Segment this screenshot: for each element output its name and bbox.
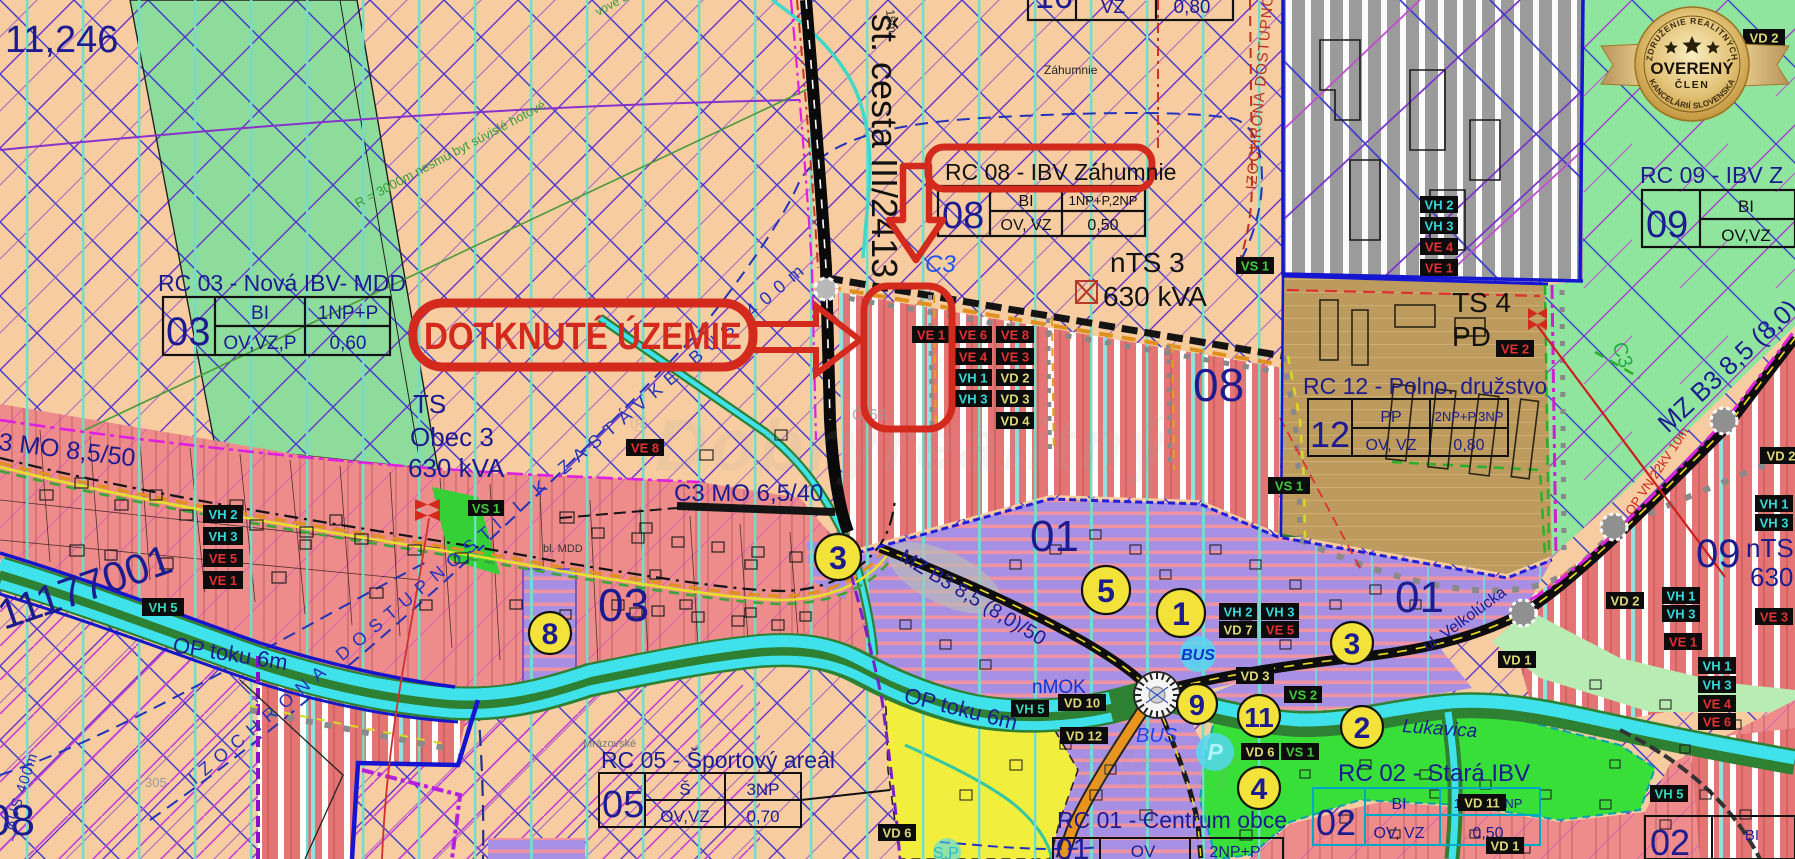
svg-text:VH 2: VH 2 xyxy=(1425,198,1454,213)
svg-text:BI: BI xyxy=(251,303,269,324)
svg-text:16: 16 xyxy=(1035,0,1073,16)
svg-text:ČLEN: ČLEN xyxy=(1675,78,1710,91)
svg-text:03: 03 xyxy=(598,579,649,631)
svg-text:VE 1: VE 1 xyxy=(917,328,945,343)
svg-text:VS 1: VS 1 xyxy=(1286,745,1314,760)
svg-text:VD 7: VD 7 xyxy=(1224,623,1253,638)
svg-text:08: 08 xyxy=(942,195,984,237)
svg-text:1NP+P,2NP: 1NP+P,2NP xyxy=(1069,193,1138,208)
svg-text:TS: TS xyxy=(413,389,446,419)
svg-text:VH 3: VH 3 xyxy=(1266,605,1295,620)
svg-text:VE 1: VE 1 xyxy=(1425,261,1453,276)
svg-text:VH 3: VH 3 xyxy=(1703,678,1732,693)
svg-text:OV,VZ,P: OV,VZ,P xyxy=(223,333,296,354)
svg-text:VD 10: VD 10 xyxy=(1064,696,1100,711)
svg-text:nTS: nTS xyxy=(1746,533,1794,563)
svg-text:VH 3: VH 3 xyxy=(1667,607,1696,622)
svg-text:VE 1: VE 1 xyxy=(1669,635,1697,650)
svg-text:OV, VZ: OV, VZ xyxy=(1366,437,1417,454)
svg-text:VE 8: VE 8 xyxy=(631,441,659,456)
svg-text:DOTKNUTÉ ÚZEMIE: DOTKNUTÉ ÚZEMIE xyxy=(424,314,742,358)
svg-text:2NP+P: 2NP+P xyxy=(1209,844,1260,859)
svg-text:Záhumnie: Záhumnie xyxy=(1044,63,1098,77)
svg-text:BI: BI xyxy=(1738,197,1754,216)
svg-text:0,60: 0,60 xyxy=(330,333,367,354)
svg-text:VS 1: VS 1 xyxy=(472,501,500,516)
svg-text:P: P xyxy=(1207,739,1223,765)
svg-text:VE 4: VE 4 xyxy=(1425,240,1454,255)
svg-text:1NP+P: 1NP+P xyxy=(318,303,379,324)
svg-text:Dobrýrealitný: Dobrýrealitný xyxy=(655,406,1171,486)
svg-text:3: 3 xyxy=(1344,628,1361,661)
svg-text:RC 03 - Nová IBV- MDD: RC 03 - Nová IBV- MDD xyxy=(158,270,406,296)
svg-text:VH 1: VH 1 xyxy=(1703,659,1732,674)
svg-text:9: 9 xyxy=(1189,690,1205,722)
svg-text:RC 08 - IBV Záhumnie: RC 08 - IBV Záhumnie xyxy=(945,159,1176,185)
svg-text:VE 6: VE 6 xyxy=(959,328,987,343)
svg-text:VD 11: VD 11 xyxy=(1464,796,1499,811)
svg-text:VS 2: VS 2 xyxy=(1289,688,1317,703)
svg-text:08: 08 xyxy=(1193,359,1244,411)
svg-text:630 kVA: 630 kVA xyxy=(1103,281,1207,312)
svg-text:VH 2: VH 2 xyxy=(1224,605,1253,620)
svg-text:VD 3: VD 3 xyxy=(1001,392,1030,407)
svg-text:VD 4: VD 4 xyxy=(1001,414,1031,429)
svg-text:05: 05 xyxy=(602,784,644,826)
svg-text:Obec 3: Obec 3 xyxy=(410,422,494,452)
svg-text:OV, VZ: OV, VZ xyxy=(1001,217,1052,234)
svg-text:VZ: VZ xyxy=(1101,0,1126,18)
svg-text:BUS: BUS xyxy=(1136,725,1178,747)
svg-text:VD 2: VD 2 xyxy=(1001,371,1030,386)
svg-text:VE 3: VE 3 xyxy=(1001,350,1029,365)
svg-text:Š: Š xyxy=(679,780,690,799)
svg-text:VE 4: VE 4 xyxy=(1703,697,1732,712)
svg-text:VH 1: VH 1 xyxy=(1760,497,1789,512)
svg-text:bl. MDD: bl. MDD xyxy=(543,543,583,555)
svg-text:3NP: 3NP xyxy=(746,780,779,799)
svg-text:VH 2: VH 2 xyxy=(209,507,238,522)
svg-text:VE 3: VE 3 xyxy=(1760,610,1788,625)
svg-text:VD 1: VD 1 xyxy=(1503,653,1532,668)
svg-text:S.P: S.P xyxy=(933,845,959,859)
svg-text:03: 03 xyxy=(166,310,211,354)
svg-text:305: 305 xyxy=(145,775,167,790)
svg-text:09: 09 xyxy=(1696,532,1741,576)
svg-text:BUS: BUS xyxy=(1181,647,1215,664)
svg-text:VD 2: VD 2 xyxy=(1611,594,1640,609)
svg-text:VS 1: VS 1 xyxy=(1275,479,1303,494)
svg-text:VS 1: VS 1 xyxy=(1241,259,1269,274)
svg-text:11: 11 xyxy=(1244,702,1274,733)
svg-text:OVERENÝ: OVERENÝ xyxy=(1650,59,1734,78)
svg-text:RC 12 - Polno. družstvo: RC 12 - Polno. družstvo xyxy=(1303,373,1547,399)
svg-text:VH 1: VH 1 xyxy=(1667,589,1696,604)
svg-text:RC 05 - Športový areál: RC 05 - Športový areál xyxy=(601,746,835,773)
svg-text:RC 01 - Centrum obce: RC 01 - Centrum obce xyxy=(1057,807,1287,833)
svg-text:VH 3: VH 3 xyxy=(209,529,238,544)
svg-text:4: 4 xyxy=(1251,773,1268,806)
svg-text:VD 2: VD 2 xyxy=(1750,31,1779,46)
svg-text:OV,VZ: OV,VZ xyxy=(660,807,709,826)
svg-text:8: 8 xyxy=(542,618,559,651)
svg-text:PD: PD xyxy=(1452,321,1491,352)
svg-text:11,246: 11,246 xyxy=(5,19,118,61)
svg-text:09: 09 xyxy=(1646,204,1688,246)
svg-text:2: 2 xyxy=(1354,712,1371,745)
svg-text:C3 MO 6,5/40: C3 MO 6,5/40 xyxy=(674,480,823,507)
svg-text:02: 02 xyxy=(1650,822,1690,859)
svg-text:VH 1: VH 1 xyxy=(959,371,988,386)
svg-text:VE 5: VE 5 xyxy=(1266,623,1294,638)
svg-text:01: 01 xyxy=(1395,573,1444,622)
svg-text:VH 5: VH 5 xyxy=(1016,702,1045,717)
svg-text:VH 3: VH 3 xyxy=(959,392,988,407)
svg-text:OV,VZ: OV,VZ xyxy=(1721,226,1770,245)
svg-text:0,80: 0,80 xyxy=(1453,437,1484,454)
svg-text:VE 6: VE 6 xyxy=(1703,715,1731,730)
svg-text:12: 12 xyxy=(1310,414,1350,455)
svg-text:RC 02 - Stará IBV: RC 02 - Stará IBV xyxy=(1338,760,1530,787)
svg-text:01: 01 xyxy=(1030,512,1079,561)
svg-text:5: 5 xyxy=(1097,573,1115,609)
svg-text:VD 3: VD 3 xyxy=(1241,669,1270,684)
svg-text:OV: OV xyxy=(1131,842,1156,859)
svg-text:VH 5: VH 5 xyxy=(149,600,178,615)
svg-text:01: 01 xyxy=(1056,833,1089,859)
svg-text:2NP+P,3NP: 2NP+P,3NP xyxy=(1435,409,1504,424)
svg-text:VD 1: VD 1 xyxy=(1491,839,1520,854)
svg-text:RC 09 - IBV Z: RC 09 - IBV Z xyxy=(1640,162,1783,188)
svg-text:VD 6: VD 6 xyxy=(1246,745,1275,760)
svg-text:0,70: 0,70 xyxy=(746,807,779,826)
svg-text:BI: BI xyxy=(1018,193,1033,210)
svg-text:VE 5: VE 5 xyxy=(209,551,237,566)
svg-text:VE 4: VE 4 xyxy=(959,350,988,365)
svg-text:nTS 3: nTS 3 xyxy=(1110,247,1185,278)
svg-text:BI: BI xyxy=(1745,827,1759,844)
svg-text:VE 1: VE 1 xyxy=(209,573,237,588)
svg-text:TS 4: TS 4 xyxy=(1452,287,1511,318)
svg-text:BI: BI xyxy=(1391,796,1406,813)
svg-text:15m: 15m xyxy=(883,9,900,34)
svg-text:VH 5: VH 5 xyxy=(1655,787,1684,802)
svg-text:VD 2: VD 2 xyxy=(1767,449,1795,464)
svg-text:VE 2: VE 2 xyxy=(1501,342,1529,357)
svg-text:C3: C3 xyxy=(925,251,956,278)
svg-text:VH 3: VH 3 xyxy=(1425,219,1454,234)
svg-text:3: 3 xyxy=(829,540,847,576)
svg-text:630 kVA: 630 kVA xyxy=(408,453,505,483)
svg-text:OV, VZ: OV, VZ xyxy=(1374,825,1425,842)
svg-text:02: 02 xyxy=(1316,802,1356,843)
svg-text:VD 12: VD 12 xyxy=(1066,729,1102,744)
svg-text:VH 3: VH 3 xyxy=(1760,516,1789,531)
svg-text:VD 6: VD 6 xyxy=(883,826,912,841)
svg-text:0,50: 0,50 xyxy=(1087,217,1118,234)
svg-text:1: 1 xyxy=(1172,596,1190,632)
svg-text:630: 630 xyxy=(1750,562,1793,592)
svg-text:PP: PP xyxy=(1380,409,1401,426)
svg-text:0,80: 0,80 xyxy=(1174,0,1211,18)
svg-text:VE 8: VE 8 xyxy=(1001,328,1029,343)
